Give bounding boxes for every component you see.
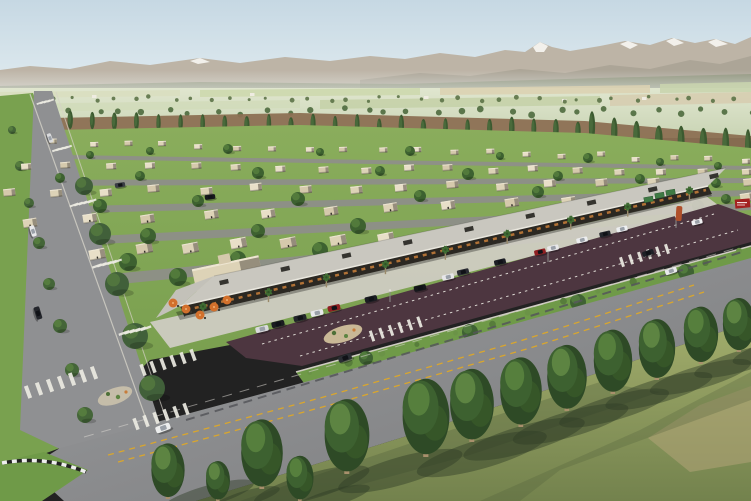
distant-tree (537, 96, 541, 100)
patio-table (231, 302, 233, 304)
patio-table (177, 305, 179, 307)
canopy-column (254, 294, 255, 301)
distant-tree (96, 99, 100, 103)
canopy-column (708, 188, 709, 195)
crosswalk-stripe (179, 352, 186, 364)
house (3, 188, 16, 197)
yard-tree-highlight (722, 195, 728, 201)
distant-tree (455, 95, 460, 100)
distant-tree (403, 109, 409, 115)
yard-tree-shadow (226, 151, 235, 154)
yard-tree-highlight (351, 219, 360, 228)
tree-highlight (552, 349, 570, 376)
distant-tree (265, 107, 271, 113)
house-ground-shadow (233, 150, 241, 152)
house (704, 156, 712, 162)
distant-tree (601, 106, 607, 112)
street-tree-highlight (34, 238, 41, 245)
median-tree-shadow (147, 394, 170, 402)
pole-lamp (547, 249, 549, 251)
distant-tree (698, 106, 703, 111)
car-glass (208, 195, 213, 199)
house-ground-shadow (90, 146, 98, 148)
house-ground-shadow (486, 153, 494, 155)
distant-tree (305, 97, 309, 101)
distant-tree (343, 97, 348, 102)
palm-crown-center (267, 291, 269, 293)
distant-tree (228, 96, 232, 100)
yard-tree-highlight (170, 269, 180, 279)
house (90, 142, 98, 148)
yard-tree-shadow (638, 181, 647, 184)
yard-tree-highlight (252, 225, 260, 233)
poplar-highlight (134, 114, 137, 127)
island-plant (332, 331, 336, 335)
house (446, 180, 459, 189)
median-tree (139, 375, 170, 402)
house (50, 189, 63, 198)
canopy-column (638, 204, 639, 211)
distant-tree (380, 109, 385, 114)
yard-tree-highlight (554, 172, 560, 178)
house-ground-shadow (158, 145, 166, 147)
median-tree-shadow (80, 190, 96, 195)
house (339, 147, 347, 153)
house (597, 151, 605, 157)
crosswalk-stripe (159, 358, 166, 370)
pole (390, 291, 391, 302)
street-tree-highlight (25, 199, 31, 205)
distant-tree (675, 97, 678, 100)
distant-tree (307, 107, 313, 113)
distant-tree (711, 99, 715, 103)
distant-tree (367, 107, 372, 112)
distant-tree (497, 97, 502, 102)
yard-tree-highlight (56, 174, 62, 180)
distant-tree (563, 100, 567, 104)
house (488, 168, 498, 175)
pole (548, 251, 549, 262)
house-ground-shadow (194, 148, 202, 150)
canopy-column (533, 229, 534, 236)
street-tree-shadow (47, 287, 58, 291)
monument-sign-text-line (737, 202, 747, 203)
palm-crown-center (506, 233, 508, 235)
house (106, 163, 116, 170)
canopy-column (673, 196, 674, 203)
distant-tree (575, 98, 578, 101)
distant-tree (290, 98, 295, 103)
verge-bush (414, 342, 419, 347)
palm-crown-center (202, 305, 204, 307)
distant-tree (609, 97, 613, 101)
distant-tree (656, 107, 661, 112)
distant-tree (636, 98, 640, 102)
distant-tree (459, 108, 465, 114)
house (60, 162, 70, 169)
poplar-highlight (589, 114, 593, 135)
scene-canvas (0, 0, 751, 501)
street-tree-highlight (78, 408, 87, 417)
house (158, 141, 166, 147)
palm-crown-center (627, 205, 629, 207)
street-tree-shadow (27, 205, 36, 208)
house (299, 185, 312, 194)
patio-table (190, 311, 192, 313)
distant-tree (99, 109, 104, 114)
house (361, 167, 371, 174)
island-plant (106, 392, 110, 396)
house (275, 165, 285, 172)
canopy-column (359, 269, 360, 276)
median-tree-highlight (76, 178, 86, 188)
distant-tree (397, 95, 400, 98)
yard-tree-shadow (88, 157, 95, 159)
street-tree-shadow (37, 246, 48, 250)
house (145, 162, 155, 169)
house (528, 165, 538, 172)
house (523, 152, 531, 158)
house (496, 183, 509, 192)
distant-tree (722, 109, 728, 115)
distant-tree (686, 96, 691, 101)
umbrella-top (213, 306, 215, 308)
house (306, 147, 314, 153)
verge-bush (560, 298, 567, 305)
yard-tree-shadow (408, 153, 417, 156)
house (395, 183, 408, 192)
house-ground-shadow (558, 158, 566, 160)
patio-table (218, 309, 220, 311)
yard-tree-shadow (255, 234, 268, 238)
farm-building (92, 95, 97, 98)
yard-tree-highlight (141, 229, 150, 238)
house (194, 144, 202, 150)
distant-tree (436, 110, 442, 116)
house (21, 163, 31, 170)
house-ground-shadow (306, 151, 314, 153)
canopy-column (498, 237, 499, 244)
verge-bush (595, 289, 600, 294)
house (486, 149, 494, 155)
pole-lamp (389, 289, 391, 291)
house-ground-shadow (339, 151, 347, 153)
yard-tree-shadow (498, 158, 505, 160)
house (233, 146, 241, 152)
island-plant (344, 334, 348, 338)
distant-tree (560, 107, 566, 113)
canopy-column (603, 212, 604, 219)
canopy-column (394, 261, 395, 268)
canopy-column (289, 286, 290, 293)
yard-tree-shadow (145, 240, 159, 245)
poplar-highlight (157, 116, 160, 128)
house-ground-shadow (523, 156, 531, 158)
yard-tree-highlight (292, 193, 300, 201)
median-tree-shadow (130, 342, 153, 350)
canopy-column (219, 302, 220, 309)
yard-tree-highlight (715, 162, 719, 166)
tree-highlight (290, 458, 302, 477)
tree-highlight (505, 361, 524, 390)
distant-tree (134, 97, 138, 101)
house (450, 150, 458, 156)
yard-tree-shadow (318, 154, 325, 156)
yard-tree-highlight (253, 168, 260, 175)
distant-tree (731, 96, 736, 101)
tree-highlight (598, 333, 616, 360)
yard-tree-shadow (418, 199, 429, 203)
crosswalk-stripe (162, 409, 169, 421)
street-tree-highlight (54, 320, 62, 328)
yard-tree-shadow (256, 176, 267, 180)
median-tree-shadow (112, 289, 134, 296)
street-tree-highlight (66, 364, 74, 372)
farm-building (642, 97, 647, 100)
yard-tree-shadow (658, 164, 665, 166)
tree-highlight (209, 463, 220, 480)
farm-building (424, 96, 429, 99)
distant-tree (678, 111, 684, 117)
median-tree-highlight (107, 273, 120, 286)
yard-tree-shadow (138, 178, 147, 181)
yard-tree-highlight (193, 196, 200, 203)
distant-tree (168, 107, 173, 112)
distant-tree (574, 109, 579, 114)
street-tree-highlight (9, 126, 13, 130)
tree-highlight (455, 373, 475, 403)
house (250, 183, 263, 192)
monument-sign-text-line (737, 205, 745, 206)
yard-tree-shadow (355, 230, 369, 235)
house-ground-shadow (597, 155, 605, 157)
house (543, 179, 556, 188)
house-ground-shadow (671, 159, 679, 161)
yard-tree-shadow (196, 204, 207, 208)
house (743, 178, 751, 187)
house (656, 169, 666, 176)
yard-tree-highlight (224, 145, 230, 151)
yard-tree-shadow (378, 173, 387, 176)
distant-tree (630, 110, 636, 116)
yard-tree-highlight (415, 191, 422, 198)
house (595, 178, 608, 187)
house (742, 169, 751, 176)
house-ground-shadow (742, 163, 750, 165)
distant-tree (597, 98, 602, 103)
yard-tree-shadow (536, 195, 547, 199)
house-ground-shadow (704, 160, 712, 162)
verge-tree-highlight (679, 265, 688, 274)
palm-crown-center (444, 249, 446, 251)
house (191, 162, 201, 169)
yard-tree-highlight (136, 172, 142, 178)
poplar-highlight (179, 116, 182, 128)
house (632, 157, 640, 163)
street-tree-shadow (57, 329, 70, 333)
distant-tree (210, 98, 214, 102)
tree-highlight (727, 301, 742, 323)
house-ground-shadow (125, 145, 133, 147)
house (231, 164, 241, 171)
verge-bush (453, 331, 458, 336)
house-ground-shadow (632, 161, 640, 163)
street-tree-highlight (44, 279, 51, 286)
crosswalk-stripe (182, 403, 189, 415)
palm-crown-center (384, 263, 386, 265)
car-glass (118, 183, 123, 187)
house (268, 146, 276, 152)
yard-tree-highlight (406, 147, 412, 153)
yard-tree-shadow (124, 266, 140, 271)
island-plant (124, 390, 127, 393)
tree-highlight (155, 447, 170, 470)
street-tree-highlight (16, 162, 22, 168)
yard-tree-highlight (231, 252, 240, 261)
distant-tree (189, 97, 193, 101)
house (379, 147, 387, 153)
yard-tree-shadow (466, 177, 477, 181)
distant-tree (528, 112, 535, 119)
street-tree-shadow (10, 132, 17, 134)
house (572, 167, 582, 174)
yard-tree-highlight (376, 167, 382, 173)
verge-bush (525, 310, 531, 316)
median-tree-highlight (91, 224, 103, 236)
house-ground-shadow (379, 151, 387, 153)
distant-tree (71, 96, 74, 99)
distant-tree (477, 106, 484, 113)
distant-tree (175, 98, 179, 102)
yard-tree-highlight (463, 169, 470, 176)
yard-tree-highlight (533, 187, 540, 194)
tree-highlight (246, 423, 265, 452)
monument-sign (735, 198, 751, 208)
canopy-column (463, 245, 464, 252)
crosswalk-stripe (169, 355, 176, 367)
house (147, 184, 160, 193)
distant-tree (342, 105, 348, 111)
yard-tree-shadow (295, 202, 308, 206)
yard-tree-highlight (313, 243, 322, 252)
palm-crown-center (570, 219, 572, 221)
yard-tree-highlight (147, 147, 151, 151)
umbrella-top (172, 302, 174, 304)
distant-tree (647, 95, 651, 99)
island-plant (116, 395, 120, 399)
yard-tree-shadow (724, 201, 733, 204)
house-ground-shadow (451, 154, 459, 156)
umbrella-top (199, 314, 201, 316)
distant-tree (112, 97, 116, 101)
poplar-highlight (68, 112, 71, 125)
farm-building (250, 93, 255, 96)
house (557, 154, 565, 160)
umbrella-top (185, 308, 187, 310)
entry-sculpture (675, 206, 682, 221)
distant-tree (510, 109, 516, 115)
street-tree-shadow (82, 419, 96, 424)
distant-tree (420, 97, 423, 100)
distant-tree (367, 100, 370, 103)
patio-table (204, 317, 206, 319)
island-plant (352, 328, 355, 331)
house (124, 141, 132, 147)
median-tree-shadow (96, 239, 116, 246)
house (442, 164, 452, 171)
median-tree-highlight (141, 376, 155, 390)
distant-tree (480, 99, 484, 103)
canopy-column (429, 253, 430, 259)
yard-tree-highlight (87, 151, 91, 155)
poplar-highlight (112, 114, 115, 127)
crosswalk-stripe (172, 406, 179, 418)
tree-highlight (330, 403, 351, 434)
distant-tree (115, 108, 121, 114)
distant-tree (264, 97, 267, 100)
tree-highlight (688, 310, 704, 334)
yard-tree-shadow (97, 209, 110, 213)
yard-tree-shadow (148, 153, 155, 155)
house (404, 164, 414, 171)
house-ground-shadow (268, 150, 276, 152)
yard-tree-highlight (497, 152, 501, 156)
distant-tree (514, 95, 519, 100)
palm-crown-center (688, 189, 690, 191)
house (350, 186, 363, 195)
house (670, 155, 678, 161)
yard-tree-shadow (586, 160, 595, 163)
distant-tree (216, 109, 221, 114)
umbrella-top (226, 299, 228, 301)
yard-tree-highlight (120, 254, 130, 264)
distant-tree (377, 95, 380, 98)
distant-tree (440, 98, 444, 102)
house (614, 169, 624, 176)
distant-tree (146, 94, 150, 98)
yard-tree-highlight (636, 175, 642, 181)
yard-tree-highlight (317, 148, 321, 152)
house (100, 188, 113, 197)
distant-tree (138, 109, 144, 115)
yard-tree-shadow (714, 185, 723, 188)
yard-tree-highlight (584, 154, 590, 160)
yard-tree-shadow (556, 178, 565, 181)
poplar-highlight (90, 113, 93, 125)
house (318, 166, 328, 173)
distant-tree (330, 99, 334, 103)
distant-tree (248, 98, 251, 101)
yard-tree-highlight (657, 158, 661, 162)
yard-tree-shadow (58, 180, 67, 183)
tree-highlight (643, 323, 660, 348)
house (742, 159, 750, 165)
palm-crown-center (325, 276, 327, 278)
tree-highlight (408, 383, 430, 415)
aerial-rendering: Aerial architectural rendering of a dese… (0, 0, 751, 501)
